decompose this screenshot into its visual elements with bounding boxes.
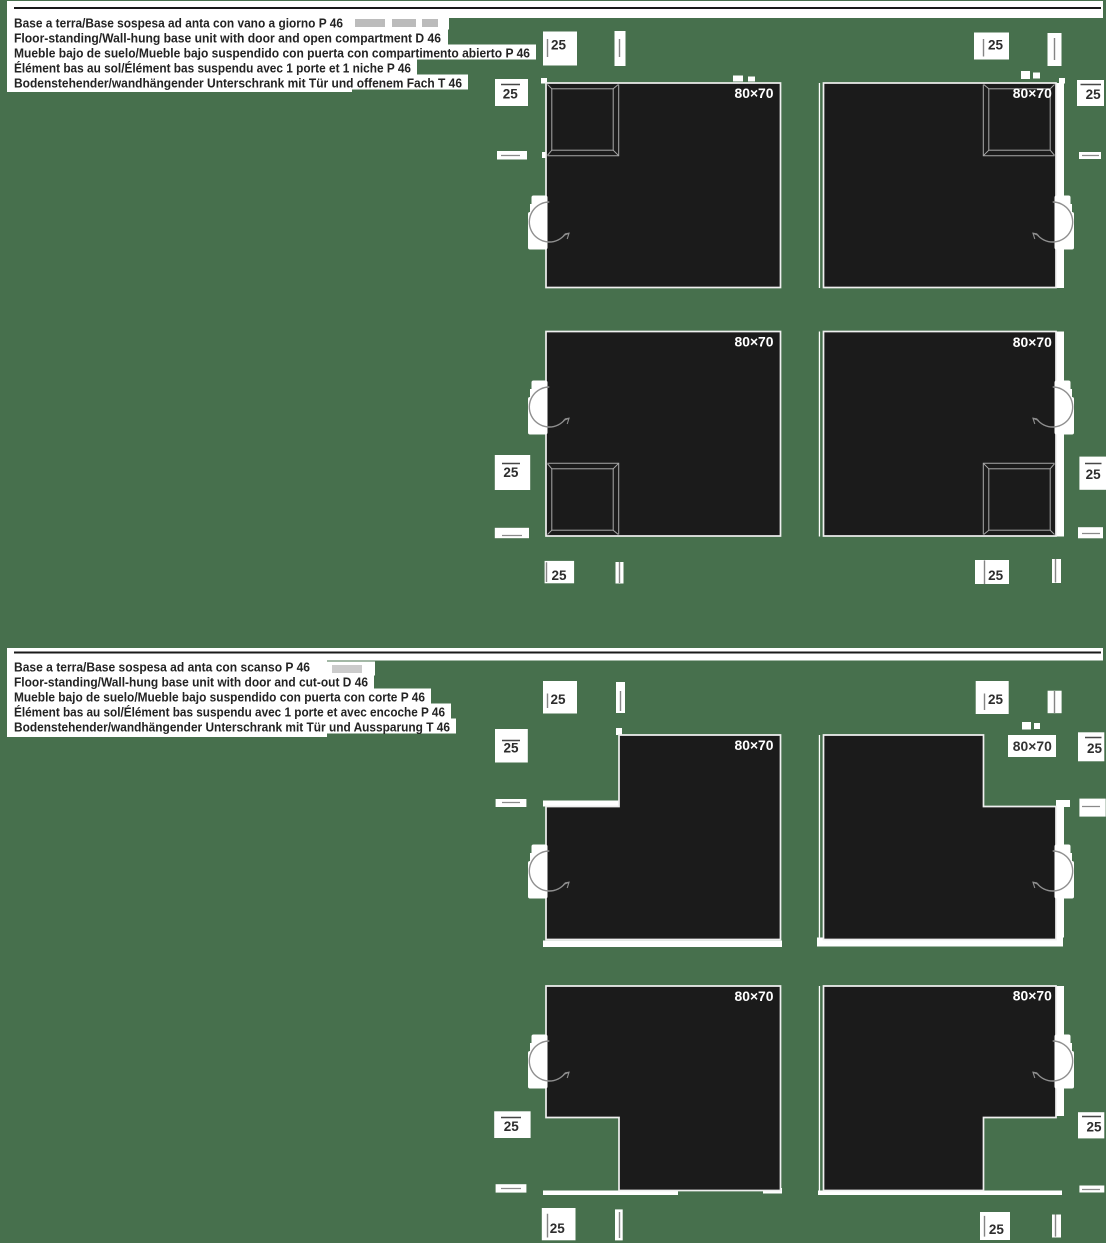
svg-text:25: 25: [1087, 741, 1103, 756]
svg-text:25: 25: [551, 38, 567, 53]
svg-text:25: 25: [989, 1222, 1005, 1237]
svg-text:25: 25: [503, 87, 519, 102]
svg-text:Élément bas au sol/Élément bas: Élément bas au sol/Élément bas suspendu …: [14, 61, 411, 76]
svg-text:25: 25: [504, 1119, 520, 1134]
svg-text:25: 25: [1086, 1120, 1102, 1135]
svg-text:Mueble bajo de suelo/Mueble ba: Mueble bajo de suelo/Mueble bajo suspend…: [14, 690, 425, 705]
svg-text:Floor-standing/Wall-hung base: Floor-standing/Wall-hung base unit with …: [14, 675, 368, 690]
svg-text:Élément bas au sol/Élément bas: Élément bas au sol/Élément bas suspendu …: [14, 705, 445, 720]
svg-text:80×70: 80×70: [735, 85, 774, 101]
svg-text:Mueble bajo de suelo/Mueble ba: Mueble bajo de suelo/Mueble bajo suspend…: [14, 46, 530, 61]
svg-text:80×70: 80×70: [1013, 85, 1052, 101]
svg-text:80×70: 80×70: [1013, 334, 1052, 350]
svg-text:Bodenstehender/wandhängender U: Bodenstehender/wandhängender Unterschran…: [14, 76, 462, 91]
svg-text:Base a terra/Base sospesa ad a: Base a terra/Base sospesa ad anta con sc…: [14, 660, 310, 675]
svg-text:25: 25: [1086, 87, 1102, 102]
svg-text:25: 25: [988, 692, 1004, 707]
svg-text:80×70: 80×70: [735, 988, 774, 1004]
svg-text:Bodenstehender/wandhängender U: Bodenstehender/wandhängender Unterschran…: [14, 720, 450, 735]
svg-text:25: 25: [988, 568, 1004, 583]
svg-text:80×70: 80×70: [735, 334, 774, 350]
svg-text:25: 25: [551, 568, 567, 583]
svg-text:80×70: 80×70: [735, 737, 774, 753]
svg-text:80×70: 80×70: [1013, 738, 1052, 754]
svg-text:25: 25: [503, 741, 519, 756]
svg-text:25: 25: [503, 465, 519, 480]
svg-text:25: 25: [550, 692, 566, 707]
svg-text:Floor-standing/Wall-hung base: Floor-standing/Wall-hung base unit with …: [14, 31, 441, 46]
svg-text:25: 25: [550, 1221, 566, 1236]
svg-text:25: 25: [988, 38, 1004, 53]
svg-text:25: 25: [1086, 467, 1102, 482]
svg-text:80×70: 80×70: [1013, 988, 1052, 1004]
svg-text:Base a terra/Base sospesa ad a: Base a terra/Base sospesa ad anta con va…: [14, 16, 343, 31]
